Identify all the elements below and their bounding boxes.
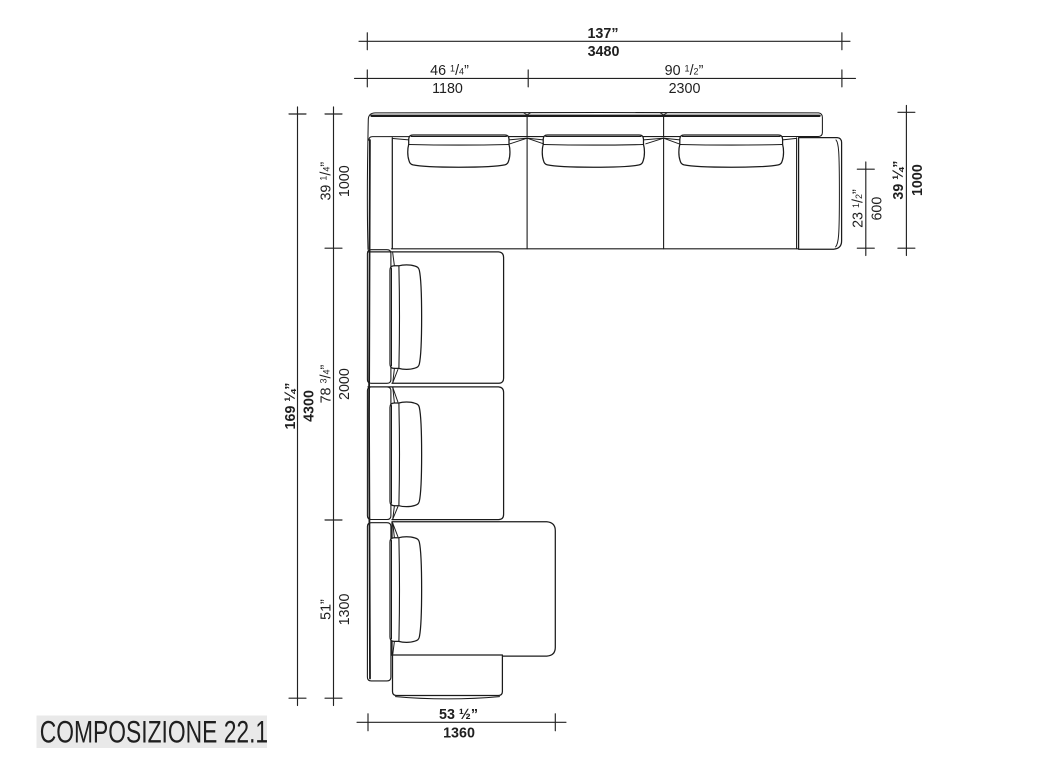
svg-text:39 ¼”: 39 ¼” — [891, 161, 907, 200]
svg-text:137”: 137” — [587, 26, 618, 42]
svg-text:23 1/2”: 23 1/2” — [851, 189, 867, 228]
svg-text:1300: 1300 — [337, 594, 353, 626]
svg-text:1000: 1000 — [337, 165, 353, 197]
svg-text:169 ¼”: 169 ¼” — [283, 383, 299, 430]
svg-text:1000: 1000 — [910, 164, 926, 196]
svg-text:53 ½”: 53 ½” — [439, 707, 478, 723]
svg-text:3480: 3480 — [588, 44, 620, 60]
svg-text:2000: 2000 — [337, 368, 353, 400]
svg-text:600: 600 — [869, 197, 885, 221]
svg-text:46 1/4”: 46 1/4” — [430, 63, 469, 79]
svg-text:51”: 51” — [318, 599, 334, 620]
svg-text:1180: 1180 — [432, 81, 463, 97]
svg-text:4300: 4300 — [302, 390, 318, 422]
svg-text:90 1/2”: 90 1/2” — [665, 63, 704, 79]
svg-text:2300: 2300 — [669, 81, 701, 97]
svg-text:COMPOSIZIONE 22.1: COMPOSIZIONE 22.1 — [40, 714, 268, 749]
svg-text:1360: 1360 — [443, 725, 475, 741]
svg-text:39 1/4”: 39 1/4” — [318, 162, 334, 201]
svg-text:78 3/4”: 78 3/4” — [318, 365, 334, 404]
